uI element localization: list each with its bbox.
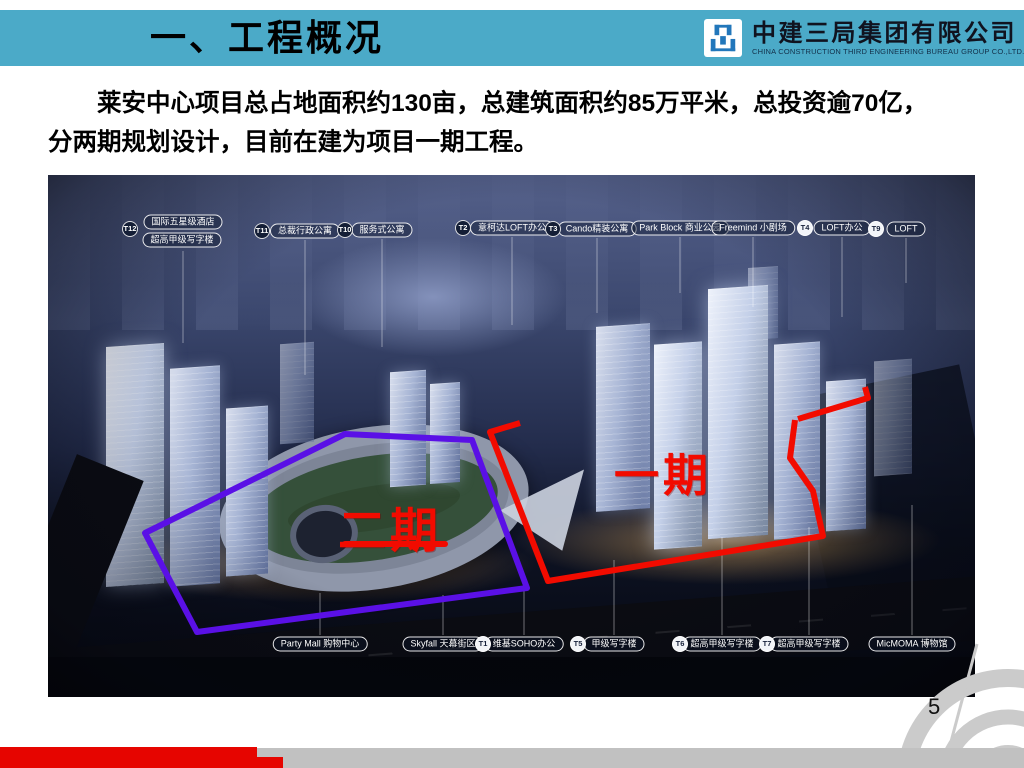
building-label: 服务式公寓: [351, 223, 412, 238]
building-badge: T11: [254, 223, 270, 239]
building-badge: T3: [545, 221, 561, 237]
building-label: 甲级写字楼: [583, 637, 644, 652]
phase2-label: 二期: [338, 491, 442, 561]
building-label: 超高甲级写字楼: [142, 233, 221, 248]
company-name: 中建三局集团有限公司 CHINA CONSTRUCTION THIRD ENGI…: [752, 21, 1024, 56]
building-badge: T4: [797, 220, 813, 236]
building-label: Freemind 小剧场: [711, 221, 795, 236]
annotation-overlay: [48, 175, 975, 697]
phase2-underline: [342, 541, 448, 547]
building-label: 超高甲级写字楼: [682, 637, 761, 652]
building-label: 维基SOHO办公: [485, 637, 564, 652]
footer-gray-bar: [255, 748, 1024, 768]
phase1-label: 一期: [614, 439, 712, 504]
building-label: 国际五星级酒店: [143, 215, 222, 230]
building-label: Party Mall 购物中心: [273, 637, 368, 652]
project-summary: 莱安中心项目总占地面积约130亩，总建筑面积约85万平米，总投资逾70亿， 分两…: [48, 84, 978, 162]
building-label: 总裁行政公寓: [270, 224, 340, 239]
building-label: LOFT办公: [813, 221, 870, 236]
building-badge: T10: [337, 222, 353, 238]
company-name-cn: 中建三局集团有限公司: [752, 21, 1024, 47]
building-label: Skyfall 天幕街区: [402, 637, 483, 652]
building-badge: T7: [759, 636, 775, 652]
building-label: 意柯达LOFT办公: [470, 221, 554, 236]
building-label: LOFT: [886, 222, 925, 237]
title-bar: 一、工程概况 中建三局集团有限公司 CHINA CONSTRUCTION THI…: [0, 10, 1024, 66]
company-logo: 中建三局集团有限公司 CHINA CONSTRUCTION THIRD ENGI…: [704, 19, 1024, 57]
building-label: Cando精装公寓: [558, 222, 637, 237]
building-label: MicMOMA 博物馆: [869, 637, 956, 652]
building-label: 超高甲级写字楼: [769, 637, 848, 652]
summary-line-1: 莱安中心项目总占地面积约130亩，总建筑面积约85万平米，总投资逾70亿，: [48, 84, 978, 123]
cscec-logo-icon: [704, 19, 742, 57]
building-badge: T9: [868, 221, 884, 237]
phase2-boundary: [145, 434, 527, 632]
footer-red-bar-step: [0, 757, 283, 768]
company-name-en: CHINA CONSTRUCTION THIRD ENGINEERING BUR…: [752, 47, 1024, 56]
project-rendering: 一期 二期 T12国际五星级酒店超高甲级写字楼T11总裁行政公寓T10服务式公寓…: [48, 175, 975, 697]
building-badge: T6: [672, 636, 688, 652]
building-badge: T1: [475, 636, 491, 652]
summary-line-2: 分两期规划设计，目前在建为项目一期工程。: [48, 123, 978, 162]
page-number: 5: [928, 694, 940, 720]
building-badge: T2: [455, 220, 471, 236]
building-badge: T12: [122, 221, 138, 237]
building-badge: T5: [570, 636, 586, 652]
phase1-boundary-segment: [798, 387, 868, 419]
page-title: 一、工程概况: [150, 10, 384, 66]
